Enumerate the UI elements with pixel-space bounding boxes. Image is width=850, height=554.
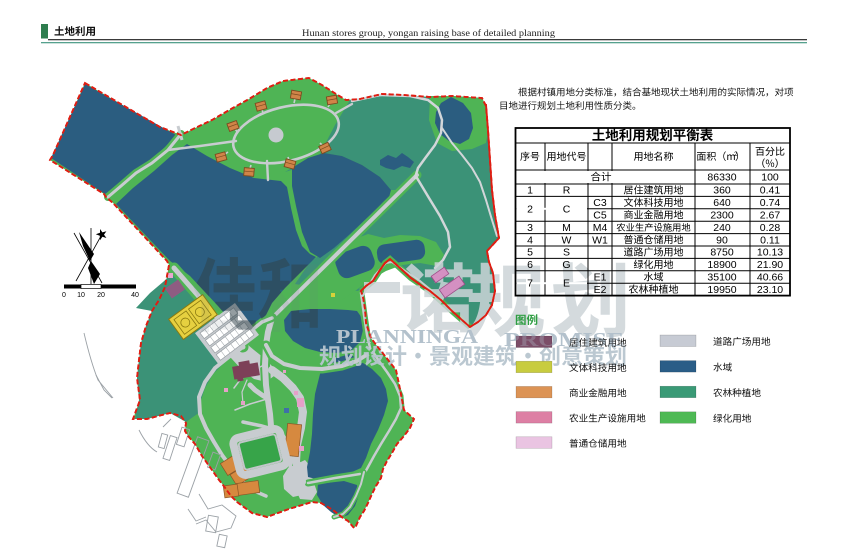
svg-text:19950: 19950 [707,284,736,296]
svg-text:35100: 35100 [707,272,736,284]
svg-text:PROMISE: PROMISE [504,329,624,351]
svg-text:40: 40 [131,292,139,299]
svg-text:PLANNINGA: PLANNINGA [336,326,479,348]
svg-text:E1: E1 [594,272,607,284]
svg-text:E2: E2 [594,284,607,296]
svg-text:0.11: 0.11 [760,234,780,246]
svg-text:20: 20 [97,292,105,299]
svg-text:21.90: 21.90 [757,259,783,271]
svg-text:C3: C3 [593,197,607,209]
svg-text:1: 1 [527,185,533,197]
svg-text:M: M [562,222,571,234]
svg-text:G: G [562,259,570,271]
svg-text:40.66: 40.66 [757,272,783,284]
svg-text:18900: 18900 [707,259,736,271]
svg-text:E: E [563,278,570,290]
svg-text:0.41: 0.41 [760,185,781,197]
svg-text:10.13: 10.13 [757,247,783,259]
svg-text:240: 240 [713,222,731,234]
svg-text:2300: 2300 [710,210,734,222]
svg-text:Hunan stores group, yongan rai: Hunan stores group, yongan raising base … [302,28,555,39]
svg-text:360: 360 [713,185,731,197]
svg-text:W1: W1 [592,234,608,246]
svg-text:W: W [562,234,572,246]
svg-text:S: S [563,247,570,259]
svg-text:6: 6 [527,259,533,271]
svg-text:R: R [563,185,571,197]
svg-text:0.28: 0.28 [760,222,781,234]
svg-text:0.74: 0.74 [760,197,781,209]
svg-text:100: 100 [761,172,779,184]
svg-text:640: 640 [713,197,731,209]
svg-text:90: 90 [716,234,728,246]
svg-text:23.10: 23.10 [757,284,783,296]
svg-text:8750: 8750 [710,247,734,259]
svg-text:2.67: 2.67 [760,210,781,222]
svg-text:2: 2 [527,203,533,215]
svg-text:C5: C5 [593,210,607,222]
svg-text:10: 10 [77,292,85,299]
svg-text:C: C [563,203,571,215]
svg-text:2: 2 [734,151,738,158]
svg-text:7: 7 [527,278,533,290]
svg-text:86330: 86330 [707,172,736,184]
svg-text:3: 3 [527,222,533,234]
svg-text:4: 4 [527,234,533,246]
svg-text:0: 0 [62,292,66,299]
svg-text:5: 5 [527,247,533,259]
svg-text:M4: M4 [593,222,608,234]
